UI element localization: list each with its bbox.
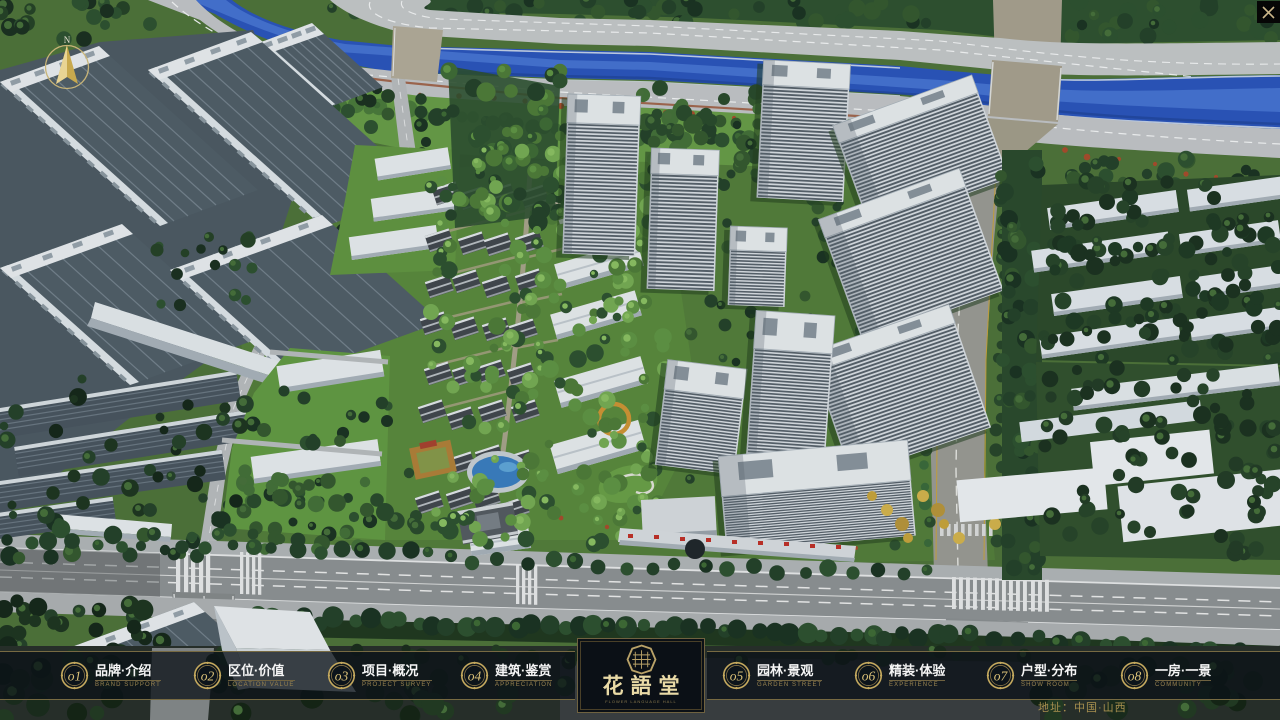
svg-text:o7: o7	[994, 668, 1009, 683]
svg-text:o4: o4	[468, 668, 482, 683]
svg-text:o2: o2	[201, 668, 215, 683]
svg-text:o8: o8	[1128, 668, 1142, 683]
svg-text:N: N	[64, 35, 71, 45]
svg-text:o3: o3	[335, 668, 349, 683]
svg-text:o5: o5	[730, 668, 744, 683]
svg-text:o6: o6	[862, 668, 876, 683]
svg-text:o1: o1	[68, 668, 82, 683]
